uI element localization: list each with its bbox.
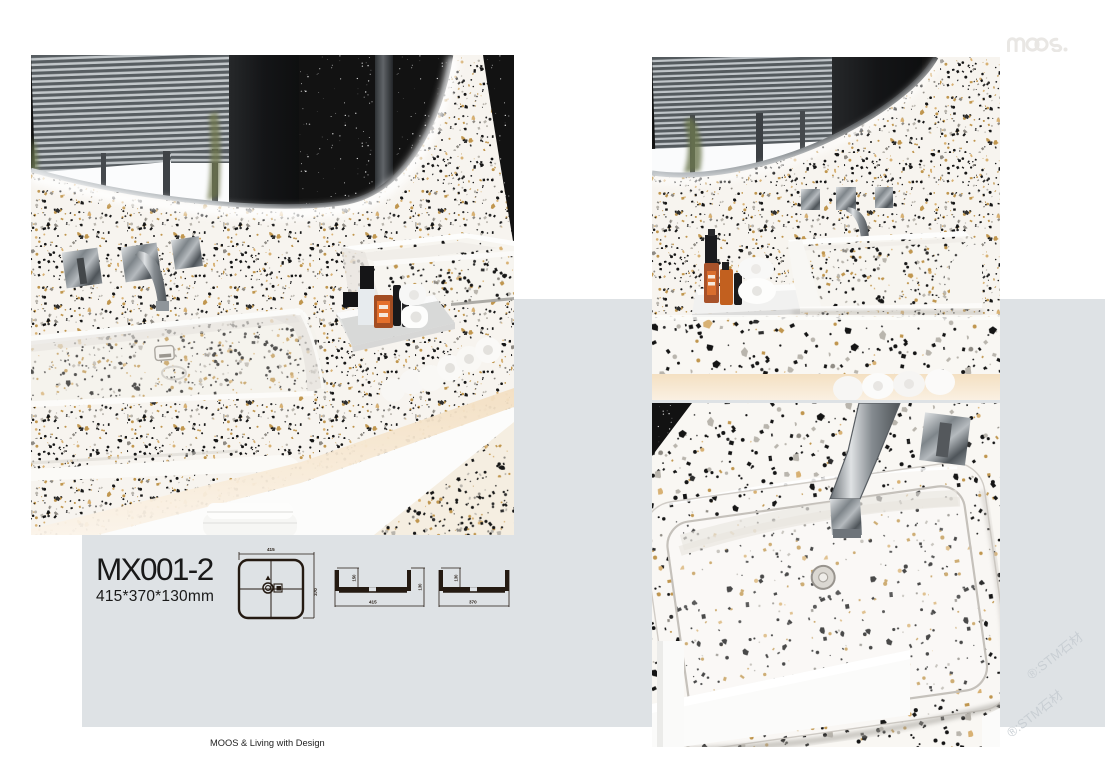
svg-text:370: 370 [313, 588, 318, 596]
svg-text:415: 415 [369, 600, 377, 605]
svg-text:130: 130 [454, 574, 459, 582]
svg-text:370: 370 [469, 600, 477, 605]
svg-text:130: 130 [418, 583, 423, 591]
svg-text:415: 415 [267, 547, 275, 552]
svg-text:150: 150 [352, 574, 357, 582]
